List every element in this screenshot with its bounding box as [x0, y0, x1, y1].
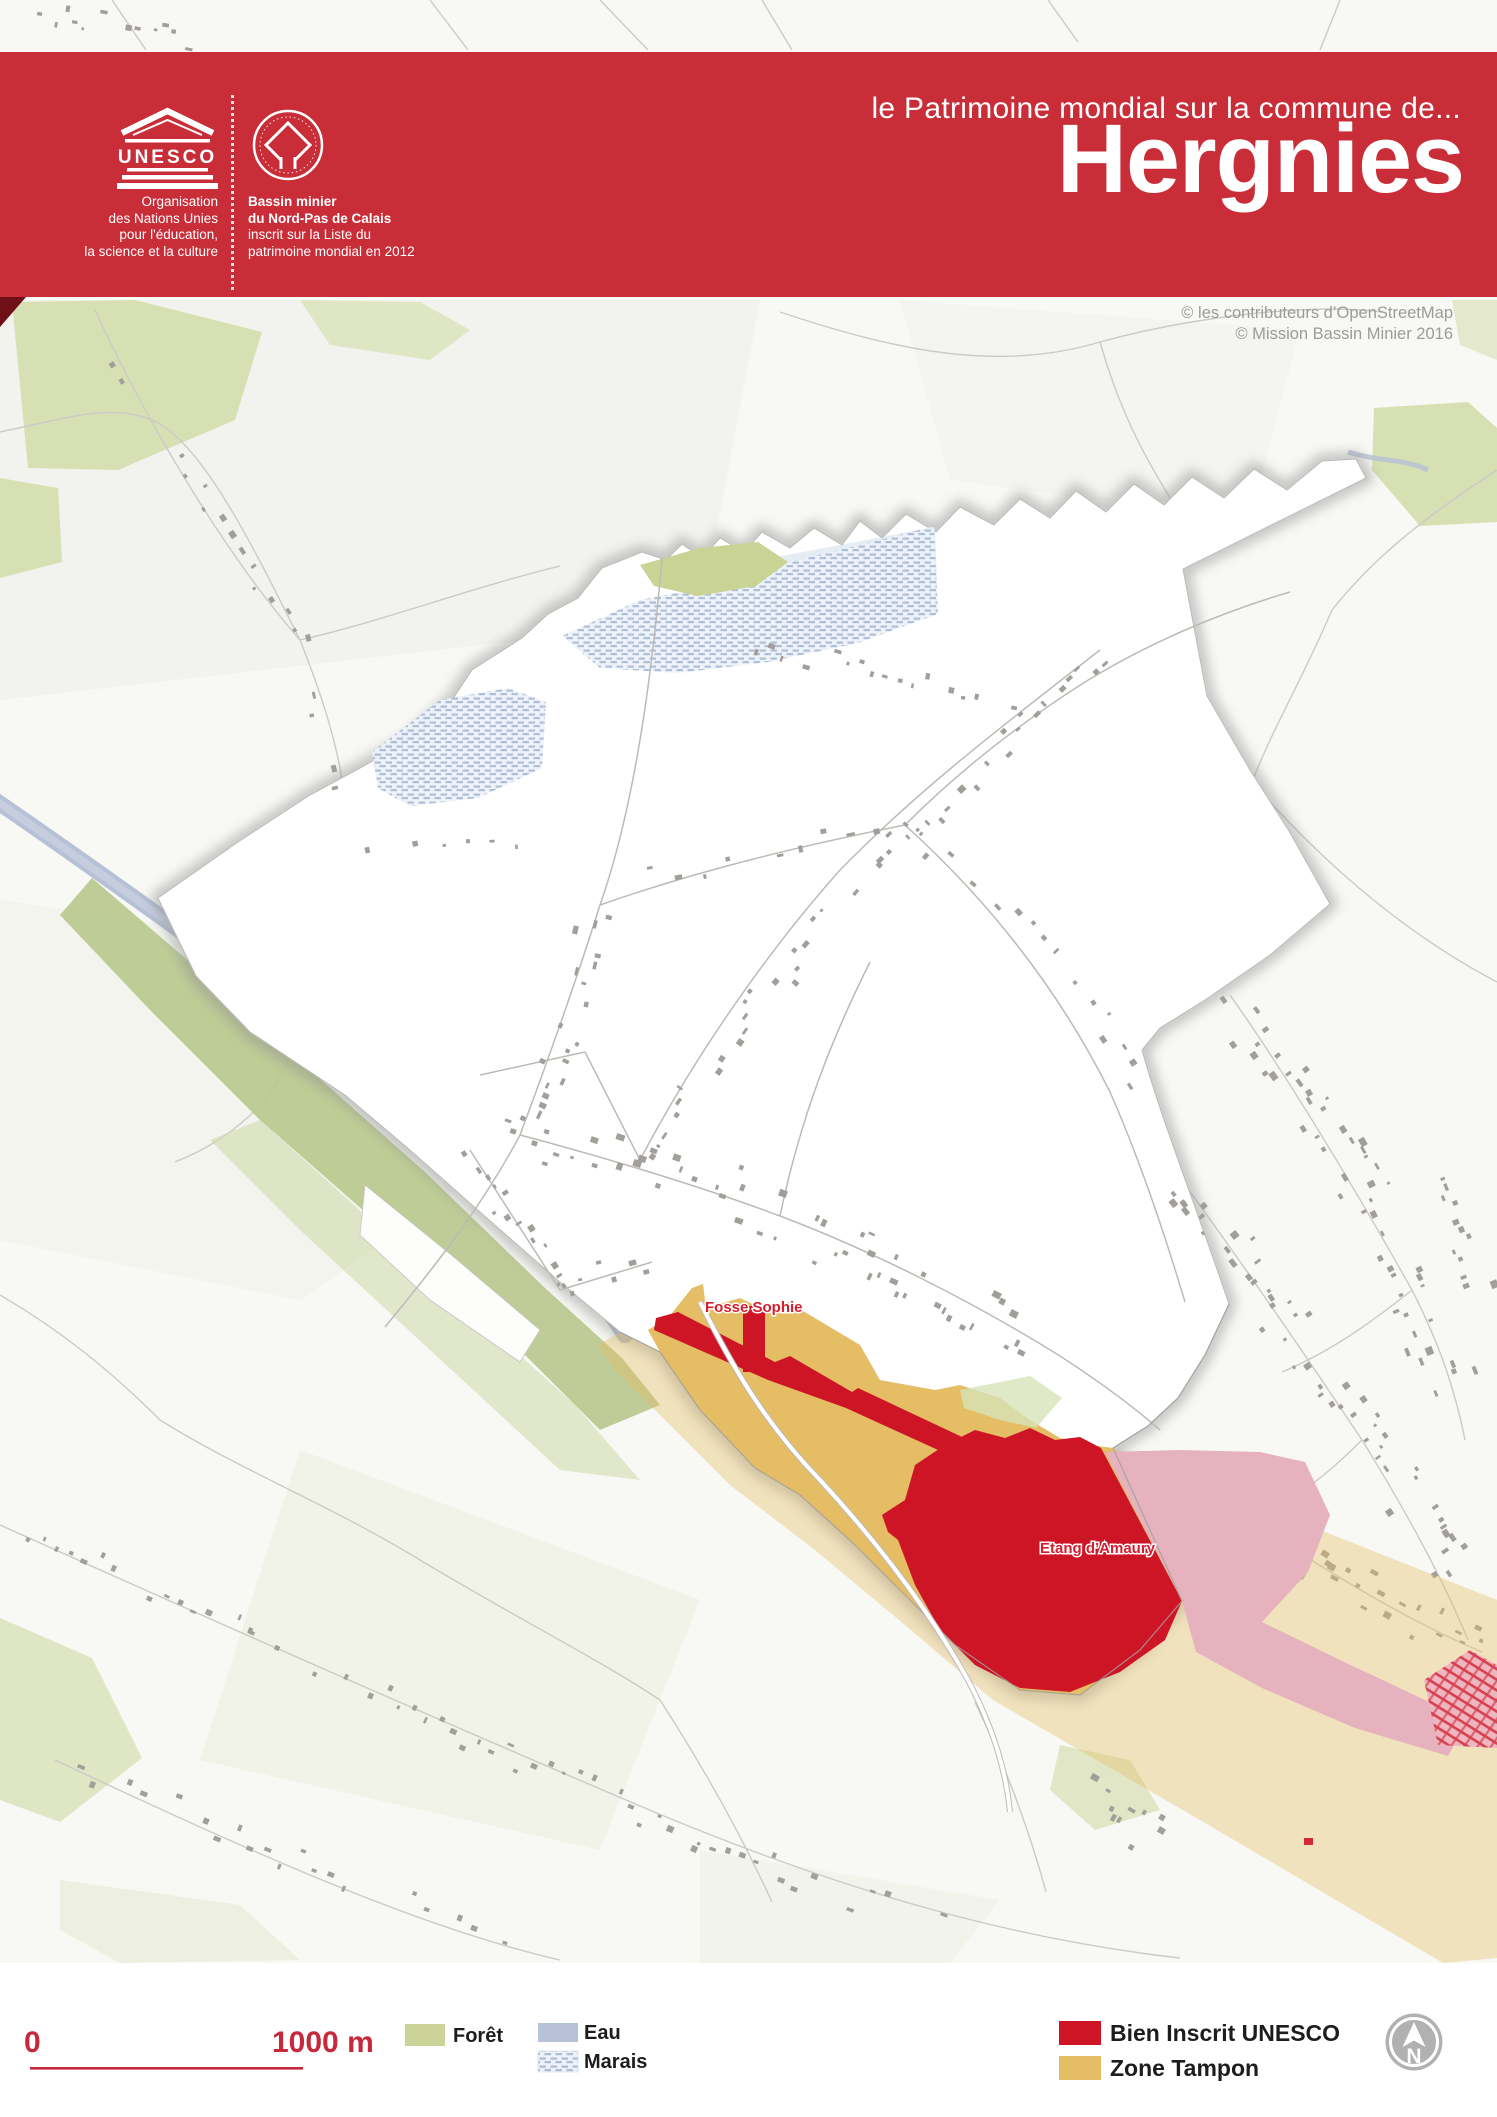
- org-line: Organisation: [18, 194, 218, 211]
- foret-swatch: [405, 2024, 445, 2046]
- legend-item-bien-inscrit: Bien Inscrit UNESCO: [1059, 2020, 1340, 2046]
- label-etang-amaury: Etang d’Amaury: [1040, 1540, 1156, 1557]
- marais-swatch: [538, 2051, 578, 2072]
- credit-mbm: © Mission Bassin Minier 2016: [1181, 324, 1453, 345]
- org-line: pour l'éducation,: [18, 227, 218, 244]
- legend-item-zone-tampon: Zone Tampon: [1059, 2055, 1259, 2081]
- north-letter: N: [1406, 2045, 1421, 2068]
- legend-item-foret: Forêt: [405, 2024, 503, 2047]
- legend-bar: 0 1000 m Forêt Eau Marais Bien Inscrit U…: [0, 1960, 1497, 2117]
- bien-inscrit-label: Bien Inscrit UNESCO: [1110, 2020, 1340, 2046]
- bien-inscrit-swatch: [1059, 2021, 1101, 2045]
- org-line: la science et la culture: [18, 244, 218, 261]
- marais-label: Marais: [584, 2051, 647, 2073]
- legend-item-marais: Marais: [538, 2051, 647, 2073]
- legend-item-eau: Eau: [538, 2022, 621, 2044]
- eau-label: Eau: [584, 2022, 621, 2044]
- zone-tampon-label: Zone Tampon: [1110, 2055, 1259, 2081]
- bassin-minier-text: Bassin minier du Nord-Pas de Calais insc…: [248, 194, 468, 260]
- eau-swatch: [538, 2023, 578, 2042]
- bassin-line: patrimoine mondial en 2012: [248, 244, 468, 261]
- bassin-line: du Nord-Pas de Calais: [248, 211, 468, 228]
- label-fosse-sophie: Fosse Sophie: [705, 1299, 803, 1316]
- bassin-line: inscrit sur la Liste du: [248, 227, 468, 244]
- svg-text:UNESCO: UNESCO: [118, 147, 217, 168]
- header-dotted-separator: [231, 95, 234, 290]
- world-heritage-emblem-icon: [248, 97, 328, 193]
- unesco-temple-icon: UNESCO: [117, 106, 218, 190]
- scale-end: 1000 m: [272, 2026, 374, 2059]
- header-band: UNESCO Organisation des Nations Unies po…: [0, 52, 1497, 297]
- unesco-org-text: Organisation des Nations Unies pour l'éd…: [18, 194, 218, 260]
- credit-osm: © les contributeurs d’OpenStreetMap: [1181, 303, 1453, 324]
- zone-tampon-swatch: [1059, 2056, 1101, 2080]
- page-title: Hergnies: [1057, 110, 1464, 207]
- north-arrow-icon: N: [1386, 2014, 1443, 2071]
- map-credits: © les contributeurs d’OpenStreetMap © Mi…: [1181, 303, 1453, 345]
- scale-zero: 0: [24, 2026, 41, 2059]
- org-line: des Nations Unies: [18, 211, 218, 228]
- scale-bar-line: [30, 2067, 303, 2070]
- bassin-line: Bassin minier: [248, 194, 468, 211]
- foret-label: Forêt: [453, 2025, 503, 2047]
